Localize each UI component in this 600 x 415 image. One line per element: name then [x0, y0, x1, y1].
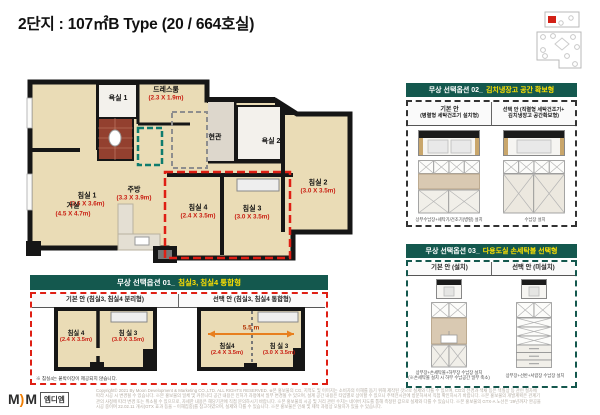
room-label-kitchen: 주방 (3.3 X 3.9m) — [117, 186, 152, 201]
option1-note: ※ 침실4는 붙박이장이 제공되지 않습니다. — [36, 376, 117, 382]
bath2-floor — [237, 106, 281, 160]
logo-swoosh-icon: ) — [20, 391, 25, 407]
option2-header: 무상 선택옵션 02_ 김치냉장고 공간 확보형 — [406, 83, 577, 97]
room-label-bed3: 침실 3 (3.0 X 3.5m) — [235, 205, 270, 220]
room-label-living: 거실 (4.5 X 4.7m) — [56, 202, 91, 217]
room-label-dress: 드레스룸 (2.3 X 1.9m) — [149, 86, 184, 101]
room-label-bed2: 침실 2 (3.0 X 3.5m) — [301, 179, 336, 194]
brochure-page: 2단지 : 107㎡B Type (20 / 664호실) — [0, 0, 600, 415]
option3-select-caption: 상부장+선반+서랍장 수납장 설치 — [494, 373, 576, 378]
option1-select-bed3-label: 침 실 3 (3.0 X 3.5m) — [263, 343, 295, 357]
option3-basic-photo — [436, 279, 462, 299]
outer-walls — [30, 82, 350, 258]
room-label-bath2: 욕실 2 — [262, 138, 281, 146]
option2-select-header: 선택 안 (직렬형 세탁건조기+ 김치냉장고 공간확보형) — [491, 102, 575, 126]
option1-arrow-label: 5.5 m — [243, 324, 260, 331]
main-floor-plan — [25, 78, 365, 266]
room-label-bed4: 침실 4 (2.4 X 3.5m) — [181, 204, 216, 219]
mdm-logo: M ) M 엠디엠 — [8, 391, 69, 407]
page-title: 2단지 : 107㎡B Type (20 / 664호실) — [18, 12, 254, 34]
option2-select-caption: 수납장 설치 — [494, 217, 576, 222]
option1-basic-bed4-label: 침실 4 (2.4 X 3.5m) — [60, 330, 92, 344]
option3-header: 무상 선택옵션 03_ 다용도실 손세탁볼 선택형 — [406, 244, 577, 258]
option1-select-bed4-label: 침실4 (2.4 X 3.5m) — [211, 343, 243, 357]
option1-basic-bed3-label: 침 실 3 (3.0 X 3.5m) — [112, 330, 144, 344]
keyplan-diagram — [531, 10, 589, 72]
copyright-text: Copyright© 2021 By Moon Development & Ma… — [96, 388, 578, 410]
room-label-entry: 현관 — [209, 134, 222, 142]
option2-basic-header: 기본 안 (병렬형 세탁건조기 설치형) — [408, 102, 491, 126]
option2-basic-photo — [418, 130, 480, 156]
room-label-bath1: 욕실 1 — [109, 95, 128, 103]
option3-select-header: 선택 안 (미설치) — [491, 262, 575, 276]
closet — [237, 179, 279, 191]
option3-basic-caption: 상부장+손세탁볼+하부장 수납장 설치 (※손세탁볼 설치 시 하부 수납공간 … — [408, 370, 490, 380]
wash-bowl — [441, 335, 457, 343]
option2-basic-caption: 상부수납장+세탁기/건조기(병렬) 설치 — [408, 217, 490, 222]
option2-select-photo — [503, 130, 565, 156]
option1-header: 무상 선택옵션 01_ 침실3, 침실4 통합형 — [30, 275, 328, 290]
option3-basic-elevation — [431, 302, 467, 368]
option1-select-plan — [196, 306, 306, 372]
option3-basic-header: 기본 안 (설치) — [408, 262, 491, 276]
entry-floor — [208, 102, 234, 161]
option2-basic-elevation — [418, 160, 480, 214]
option3-select-photo — [521, 279, 547, 299]
unit-location-marker — [548, 16, 556, 23]
toilet-icon — [109, 130, 121, 146]
option2-select-elevation — [503, 160, 565, 214]
option3-select-elevation — [516, 302, 552, 368]
